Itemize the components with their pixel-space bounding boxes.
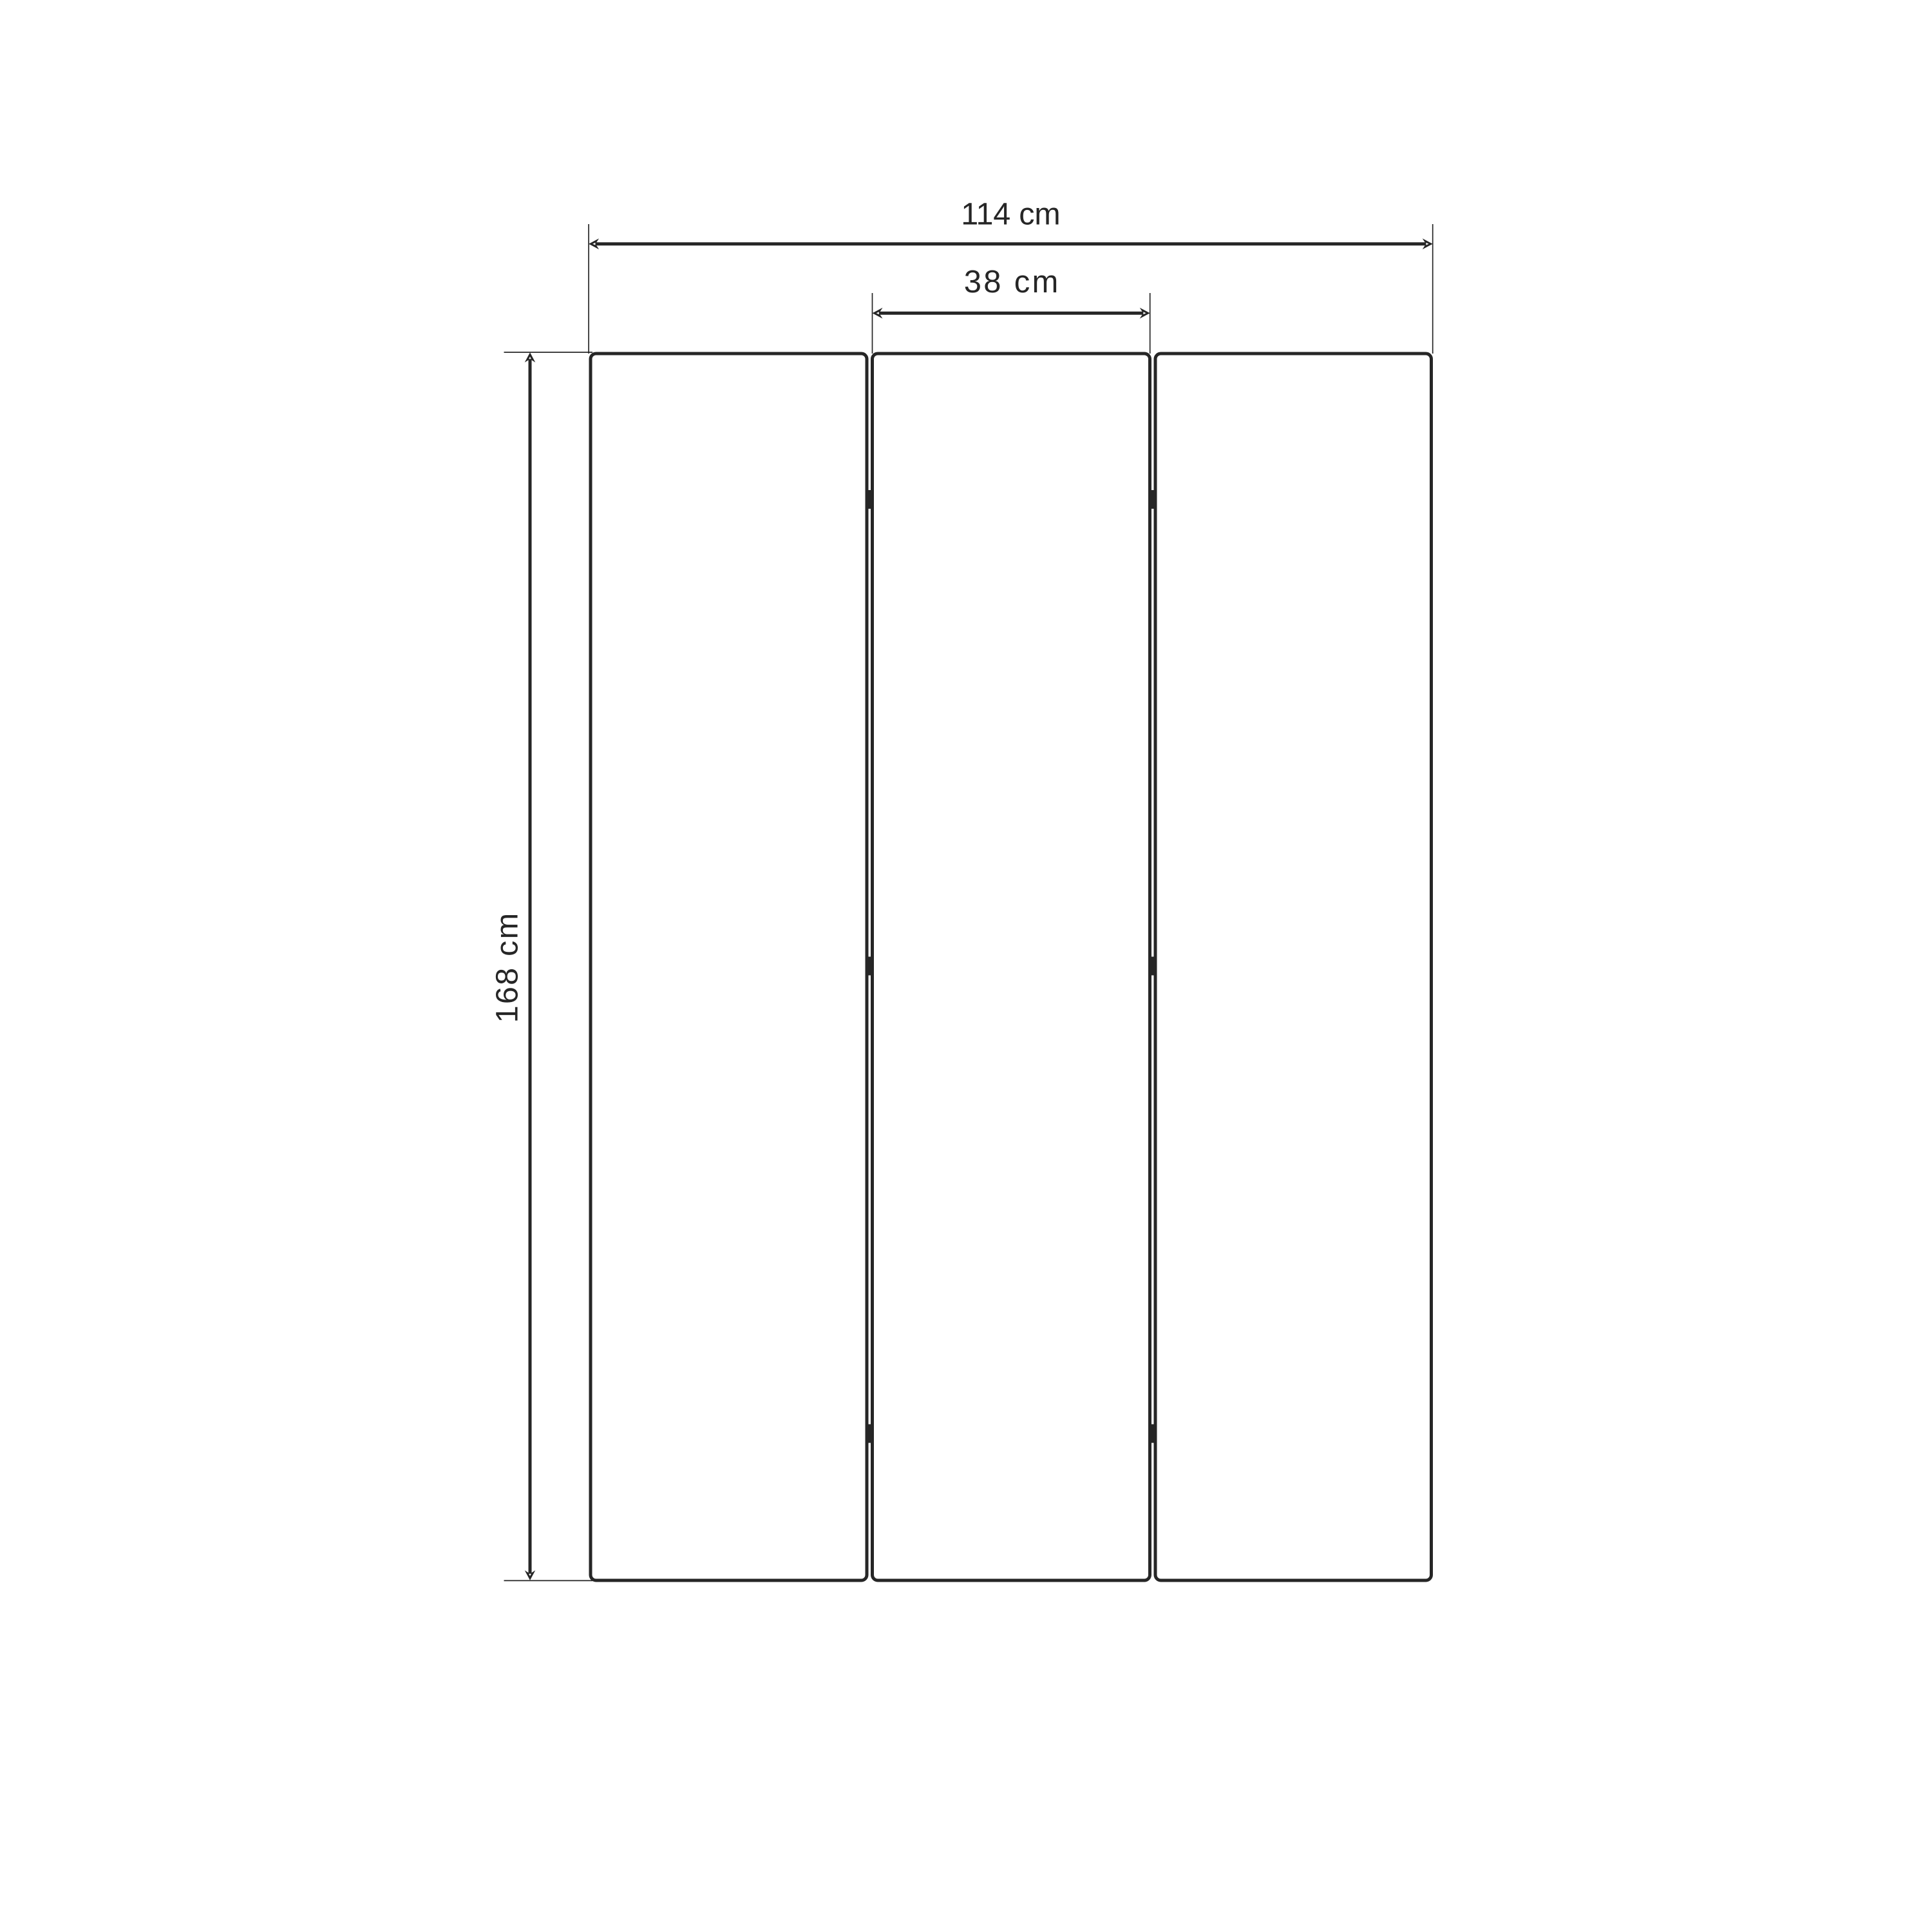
svg-text:38 cm: 38 cm xyxy=(964,265,1061,299)
svg-text:114 cm: 114 cm xyxy=(961,197,1060,232)
svg-text:168 cm: 168 cm xyxy=(490,912,525,1023)
